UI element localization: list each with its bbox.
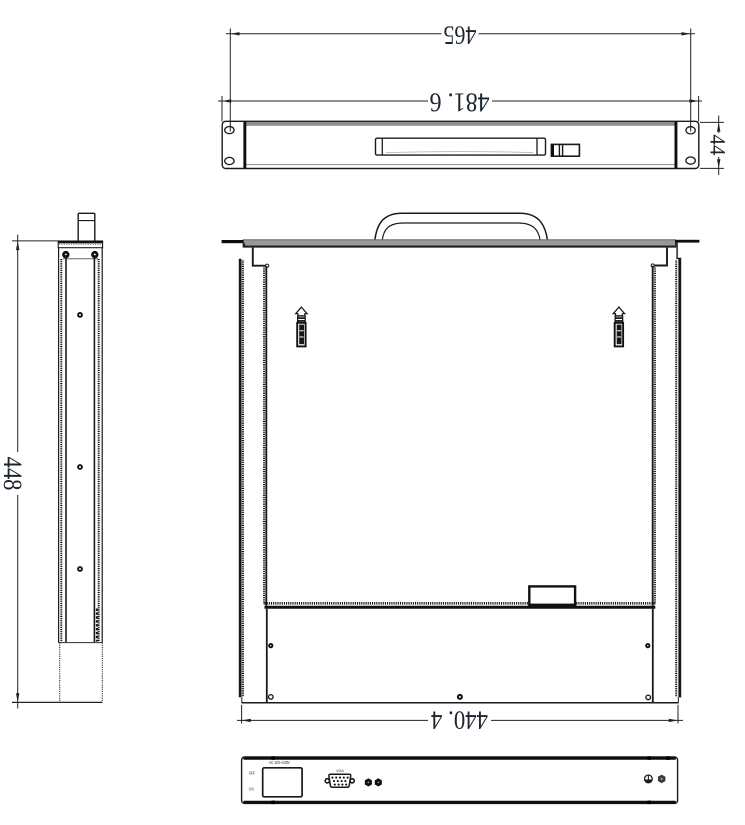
svg-text:VGA: VGA: [336, 769, 344, 773]
svg-text:465: 465: [444, 21, 477, 50]
svg-text:440. 4: 440. 4: [431, 706, 488, 735]
svg-text:AC 100~240V: AC 100~240V: [269, 760, 291, 765]
svg-text:ON: ON: [249, 787, 255, 791]
svg-text:OFF: OFF: [249, 772, 256, 776]
svg-text:44: 44: [706, 135, 731, 156]
svg-text:448: 448: [0, 457, 27, 491]
svg-text:481. 6: 481. 6: [430, 87, 490, 117]
